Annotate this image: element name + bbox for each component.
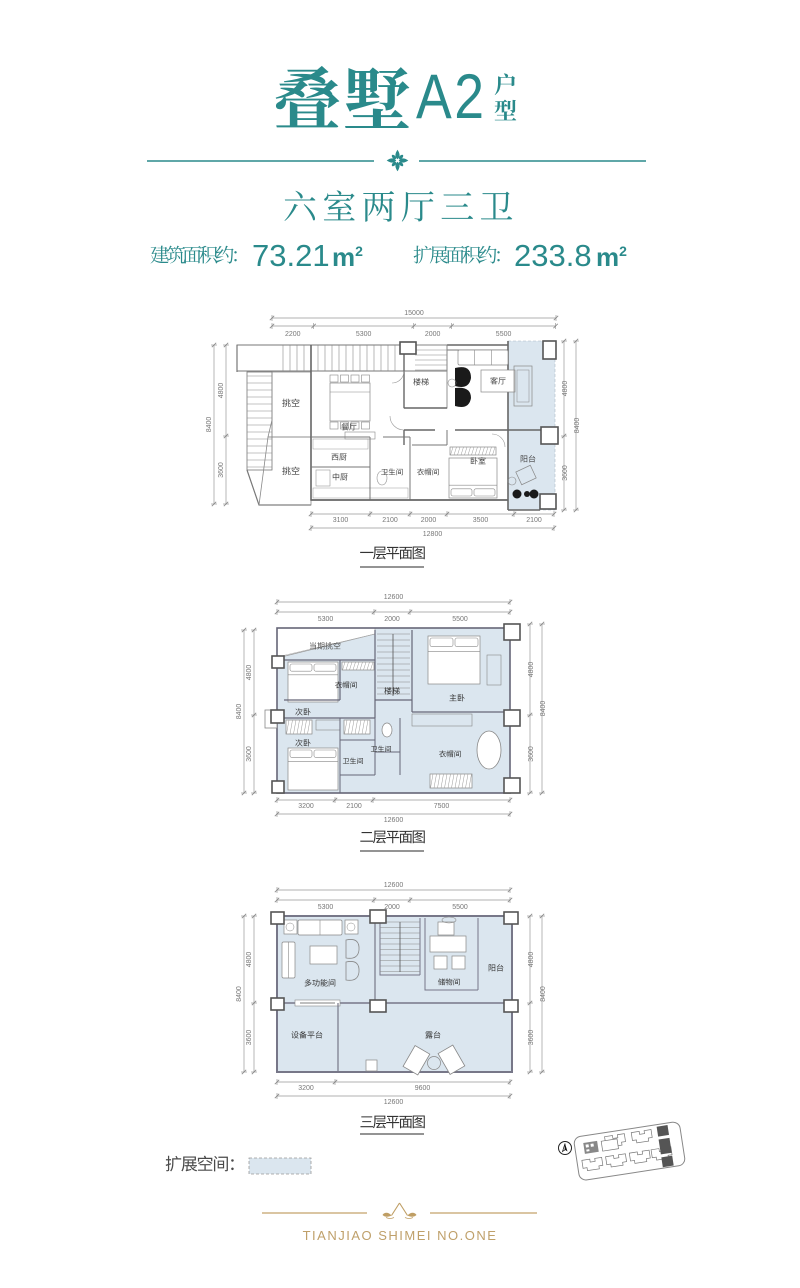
- svg-text:233.8: 233.8: [514, 238, 592, 273]
- svg-text:3600: 3600: [246, 1030, 253, 1046]
- svg-text:2000: 2000: [421, 517, 437, 524]
- svg-text:8400: 8400: [540, 986, 547, 1002]
- svg-text:3600: 3600: [246, 746, 253, 762]
- svg-text:12600: 12600: [384, 594, 404, 601]
- svg-text:8400: 8400: [236, 986, 243, 1002]
- svg-text:5500: 5500: [496, 331, 512, 338]
- svg-text:73.21: 73.21: [252, 238, 330, 273]
- svg-text:3600: 3600: [528, 1030, 535, 1046]
- svg-text:8400: 8400: [574, 418, 581, 434]
- svg-text:12600: 12600: [384, 1099, 404, 1106]
- svg-text:TIANJIAO SHIMEI NO.ONE: TIANJIAO SHIMEI NO.ONE: [303, 1228, 498, 1243]
- svg-text:2100: 2100: [346, 803, 362, 810]
- svg-text:4800: 4800: [562, 381, 569, 397]
- svg-text:4800: 4800: [528, 662, 535, 678]
- svg-text:12800: 12800: [423, 531, 443, 538]
- svg-text:3200: 3200: [298, 803, 314, 810]
- svg-text:5300: 5300: [318, 616, 334, 623]
- svg-text:3500: 3500: [473, 517, 489, 524]
- svg-text:8400: 8400: [540, 701, 547, 717]
- svg-text:5300: 5300: [356, 331, 372, 338]
- svg-text:5500: 5500: [452, 616, 468, 623]
- svg-text:7500: 7500: [434, 803, 450, 810]
- svg-text:m2: m2: [596, 242, 627, 272]
- svg-text:3100: 3100: [333, 517, 349, 524]
- svg-text:12600: 12600: [384, 882, 404, 889]
- svg-text:A2: A2: [416, 62, 487, 132]
- svg-text:3600: 3600: [528, 746, 535, 762]
- svg-text:2100: 2100: [382, 517, 398, 524]
- svg-text:12600: 12600: [384, 817, 404, 824]
- svg-text:5300: 5300: [318, 904, 334, 911]
- svg-text:4800: 4800: [246, 665, 253, 681]
- svg-text:2200: 2200: [285, 331, 301, 338]
- svg-text:3600: 3600: [218, 462, 225, 478]
- svg-text:3200: 3200: [298, 1085, 314, 1092]
- svg-text:3600: 3600: [562, 465, 569, 481]
- svg-text:9600: 9600: [415, 1085, 431, 1092]
- svg-text:4800: 4800: [218, 383, 225, 399]
- svg-text:4800: 4800: [528, 952, 535, 968]
- svg-text:8400: 8400: [206, 417, 213, 433]
- svg-text:15000: 15000: [404, 310, 424, 317]
- svg-text:8400: 8400: [236, 704, 243, 720]
- svg-text:m2: m2: [332, 242, 363, 272]
- svg-text:5500: 5500: [452, 904, 468, 911]
- svg-text:2000: 2000: [384, 616, 400, 623]
- svg-text:2000: 2000: [425, 331, 441, 338]
- svg-text:2100: 2100: [526, 517, 542, 524]
- svg-text:4800: 4800: [246, 952, 253, 968]
